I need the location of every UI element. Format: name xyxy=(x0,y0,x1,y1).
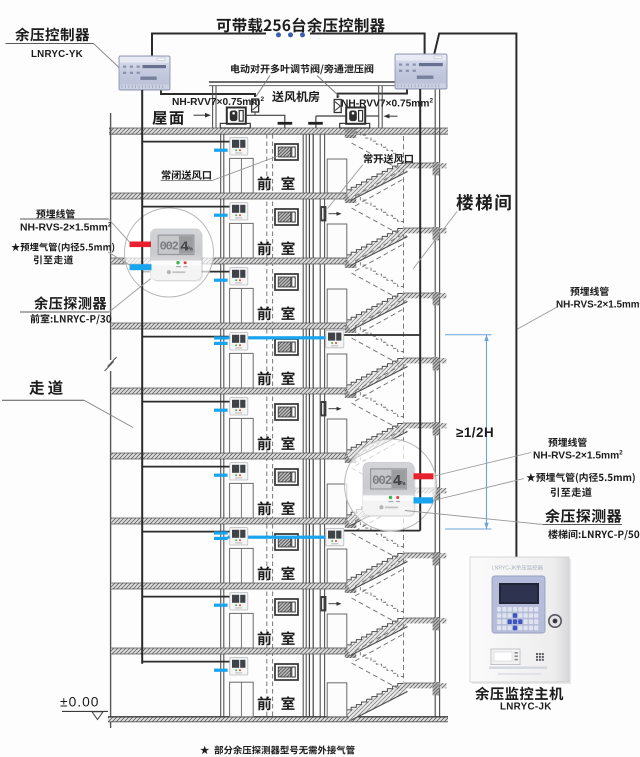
svg-text:LNRYC-JK: LNRYC-JK xyxy=(500,702,552,713)
svg-text:±0.00: ±0.00 xyxy=(60,695,99,710)
svg-text:NH-RVS-2×1.5mm2: NH-RVS-2×1.5mm2 xyxy=(533,450,623,462)
svg-text:NH-RVS-2×1.5mm2: NH-RVS-2×1.5mm2 xyxy=(20,222,112,234)
svg-text:Pa: Pa xyxy=(187,247,193,253)
svg-text:NH-RVV7×0.75mm2: NH-RVV7×0.75mm2 xyxy=(341,98,433,110)
svg-text:LNRYC-JK: LNRYC-JK xyxy=(492,566,517,572)
svg-text:Pa: Pa xyxy=(399,481,405,487)
svg-text:NH-RVV7×0.75mm2: NH-RVV7×0.75mm2 xyxy=(172,96,264,108)
svg-text:NH-RVS-2×1.5mm2: NH-RVS-2×1.5mm2 xyxy=(556,299,640,311)
svg-text:LNRYC-YK: LNRYC-YK xyxy=(31,49,83,60)
svg-text:≥1/2H: ≥1/2H xyxy=(456,425,494,440)
